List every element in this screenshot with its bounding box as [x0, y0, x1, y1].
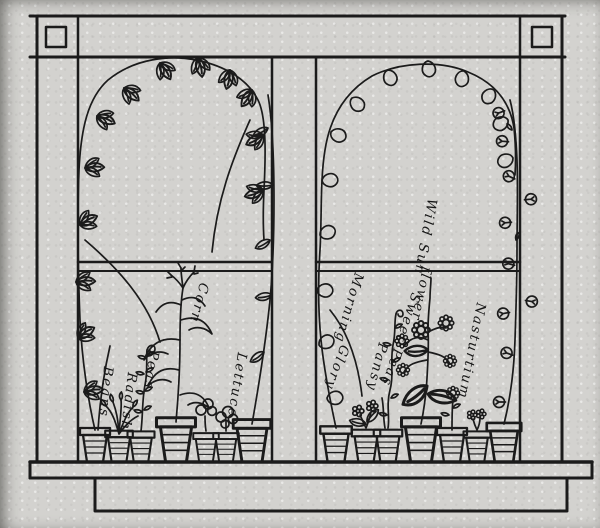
label-corn: Corn [186, 281, 212, 325]
small-seedling-plant [468, 409, 486, 430]
pot-vine [233, 420, 271, 463]
sill-apron [95, 478, 567, 511]
pot-peas [128, 431, 155, 462]
label-wild-sun: Wild Sun [411, 197, 440, 276]
label-beans: Beans [96, 365, 117, 419]
window-sill [30, 462, 592, 478]
label-peas: Peas [140, 348, 162, 390]
window-garden-illustration: Beans Radish Peas Corn Lettuce Morning G… [0, 0, 600, 528]
corner-block-square-left [46, 27, 66, 47]
label-lettuce: Lettuce [224, 350, 250, 419]
pot-corn [157, 418, 196, 462]
pot-lettuce-1 [193, 433, 219, 462]
corner-block-square-right [532, 27, 552, 47]
pot-nasturtium [487, 423, 522, 462]
label-morning: Morning [331, 270, 367, 345]
pot-pansy [352, 430, 381, 462]
pot-lettuce-2 [213, 433, 239, 462]
label-nasturtium: Nasturtium [454, 300, 489, 401]
pansy-plant [349, 400, 382, 430]
label-glory: Glory [321, 343, 352, 393]
pot-sweet-peas [374, 430, 403, 462]
scanned-page: Beans Radish Peas Corn Lettuce Morning G… [0, 0, 600, 528]
pot-morning-glory [320, 426, 352, 462]
morning-glory-plant [316, 61, 516, 428]
flower-pots [80, 418, 521, 462]
